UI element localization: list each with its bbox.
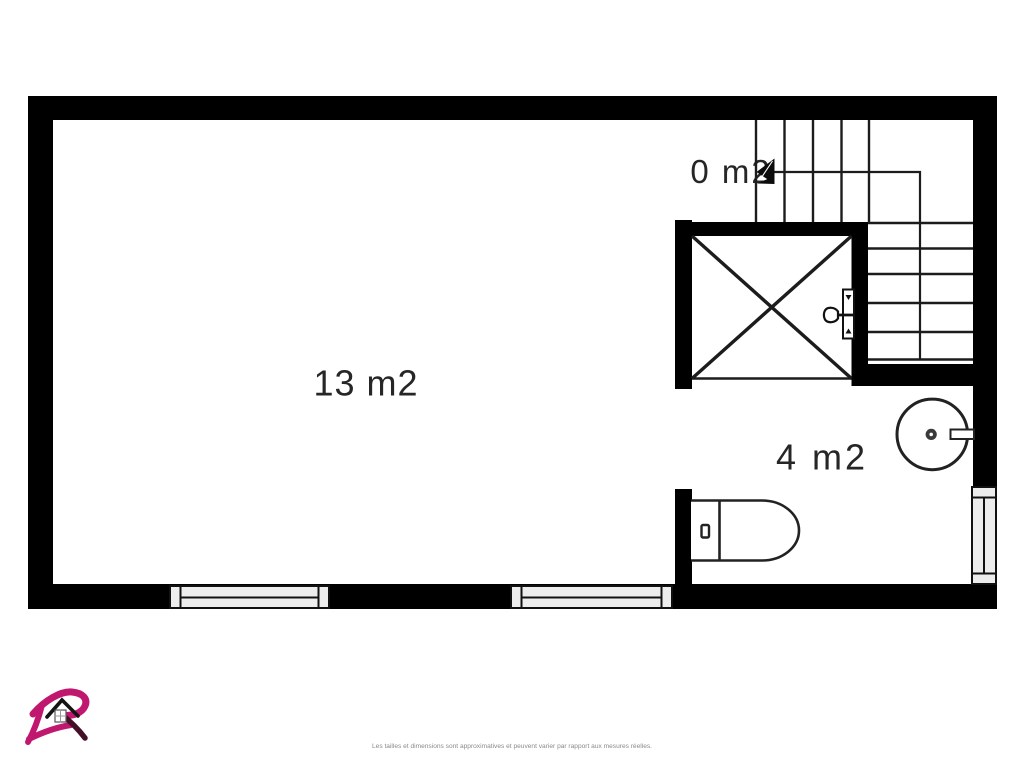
svg-text:4 m2: 4 m2 <box>776 437 868 478</box>
svg-text:13 m2: 13 m2 <box>313 363 418 404</box>
svg-text:Les tailles et dimensions sont: Les tailles et dimensions sont approxima… <box>372 743 652 750</box>
